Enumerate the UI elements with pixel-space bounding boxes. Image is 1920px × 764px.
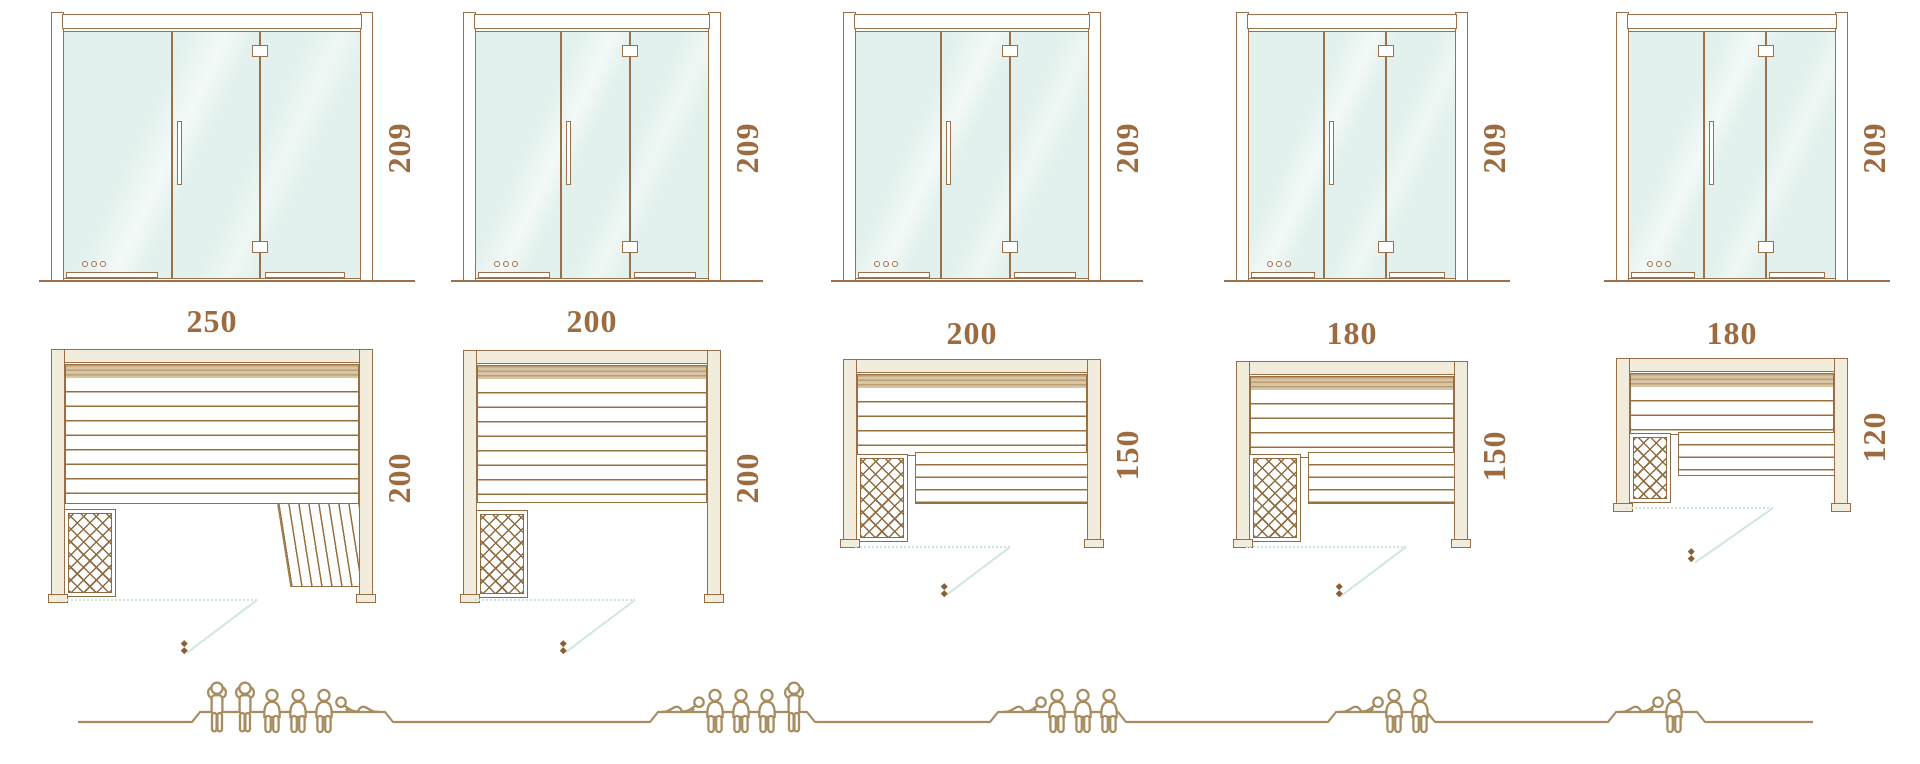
wall-foot bbox=[704, 594, 724, 603]
door-sill bbox=[1014, 272, 1077, 278]
front-glass-line bbox=[855, 546, 1010, 548]
door-sill bbox=[1389, 272, 1445, 278]
door-swing-line bbox=[1340, 546, 1407, 597]
door-height-dimension: 209 bbox=[1105, 126, 1149, 170]
plan-width-dimension: 180 bbox=[1616, 317, 1848, 349]
front-glass-line bbox=[475, 599, 635, 601]
door-swing-line bbox=[186, 599, 257, 654]
door-elevation: 209 bbox=[843, 12, 1101, 281]
door-frame-right-post bbox=[1088, 12, 1101, 281]
floor-plan bbox=[843, 359, 1101, 548]
wall-right bbox=[707, 350, 721, 596]
front-bench bbox=[915, 452, 1088, 504]
sauna-column-200x200: 209 200 200 bbox=[463, 0, 721, 764]
wall-foot bbox=[48, 594, 68, 603]
back-bench bbox=[65, 364, 359, 504]
plan-depth-dimension: 150 bbox=[1472, 434, 1516, 478]
plan-depth-dimension: 150 bbox=[1105, 433, 1149, 477]
vent-dots-icon bbox=[1647, 261, 1671, 267]
door-swing-line bbox=[1695, 507, 1774, 563]
door-sill bbox=[1251, 272, 1315, 278]
wall-right bbox=[1834, 358, 1848, 505]
door-swing-marker bbox=[560, 640, 566, 646]
door-hinge-icon bbox=[252, 241, 268, 253]
door-hinge-icon bbox=[252, 45, 268, 57]
door-frame-top-bar bbox=[62, 14, 362, 29]
door-frame-right-post bbox=[360, 12, 373, 281]
door-sill bbox=[1769, 272, 1825, 278]
wall-right bbox=[1087, 359, 1101, 541]
door-swing-line bbox=[564, 599, 635, 654]
door-frame-right-post bbox=[708, 12, 721, 281]
sauna-column-250x200: 209 250 200 bbox=[51, 0, 373, 764]
door-handle-icon bbox=[1329, 121, 1334, 185]
glass-mullion bbox=[940, 32, 942, 278]
front-glass-line bbox=[67, 599, 257, 601]
person-sitting bbox=[733, 690, 748, 732]
door-sill bbox=[634, 272, 697, 278]
door-hinge-icon bbox=[1002, 45, 1018, 57]
door-swing-marker bbox=[1688, 548, 1694, 554]
glass-front-panel bbox=[1248, 31, 1456, 279]
person-standing bbox=[785, 683, 803, 732]
door-handle-icon bbox=[946, 121, 951, 185]
door-sill bbox=[265, 272, 345, 278]
person-sitting bbox=[1101, 690, 1116, 732]
door-sill bbox=[478, 272, 550, 278]
vent-dots-icon bbox=[874, 261, 898, 267]
door-elevation: 209 bbox=[1616, 12, 1848, 281]
door-hinge-icon bbox=[1378, 45, 1394, 57]
door-frame-right-post bbox=[1835, 12, 1848, 281]
back-bench bbox=[1630, 373, 1834, 435]
heater bbox=[1629, 433, 1671, 503]
door-elevation: 209 bbox=[463, 12, 721, 281]
wall-left bbox=[51, 349, 65, 596]
back-bench bbox=[857, 374, 1087, 456]
wall-foot bbox=[1831, 503, 1851, 512]
door-baseline bbox=[39, 280, 415, 282]
floor-plan bbox=[1236, 361, 1468, 548]
plan-depth-dimension: 120 bbox=[1852, 415, 1896, 459]
wall-foot bbox=[1451, 539, 1471, 548]
door-frame-top-bar bbox=[474, 14, 710, 29]
door-frame-top-bar bbox=[1627, 14, 1837, 29]
door-swing-marker bbox=[1336, 583, 1342, 589]
glass-mullion bbox=[560, 32, 562, 278]
door-hinge-icon bbox=[622, 45, 638, 57]
glass-front-panel bbox=[63, 31, 361, 279]
floor-plan bbox=[51, 349, 373, 603]
door-sill bbox=[66, 272, 158, 278]
floor-plan bbox=[463, 350, 721, 603]
door-height-dimension: 209 bbox=[377, 126, 421, 170]
door-swing-line bbox=[946, 546, 1011, 596]
sauna-column-200x150: 209 200 150 bbox=[843, 0, 1101, 764]
door-handle-icon bbox=[1709, 121, 1714, 185]
wall-left bbox=[463, 350, 477, 596]
door-frame-top-bar bbox=[854, 14, 1090, 29]
wall-right bbox=[1454, 361, 1468, 541]
door-swing-marker bbox=[181, 640, 187, 646]
door-height-dimension: 209 bbox=[1852, 126, 1896, 170]
door-hinge-icon bbox=[1002, 241, 1018, 253]
wall-left bbox=[1236, 361, 1250, 541]
wall-back bbox=[51, 349, 373, 363]
door-frame-top-bar bbox=[1247, 14, 1457, 29]
plan-width-dimension: 250 bbox=[51, 305, 373, 337]
door-elevation: 209 bbox=[51, 12, 373, 281]
glass-mullion bbox=[1323, 32, 1325, 278]
door-handle-icon bbox=[566, 121, 571, 185]
heater bbox=[856, 454, 908, 542]
door-hinge-icon bbox=[1378, 241, 1394, 253]
wall-right bbox=[359, 349, 373, 596]
door-handle-icon bbox=[177, 121, 182, 185]
heater bbox=[476, 510, 528, 598]
door-height-dimension: 209 bbox=[1472, 126, 1516, 170]
door-hinge-icon bbox=[622, 241, 638, 253]
back-bench bbox=[477, 365, 707, 503]
sauna-column-180x120: 209 180 120 bbox=[1616, 0, 1848, 764]
wall-back bbox=[843, 359, 1101, 373]
glass-front-panel bbox=[1628, 31, 1836, 279]
wall-left bbox=[1616, 358, 1630, 505]
heater bbox=[1249, 454, 1301, 542]
sauna-size-diagram: 209 250 200 bbox=[0, 0, 1920, 764]
front-glass-line bbox=[1626, 507, 1773, 509]
vent-dots-icon bbox=[494, 261, 518, 267]
back-bench bbox=[1250, 376, 1454, 458]
wall-foot bbox=[356, 594, 376, 603]
front-bench bbox=[1678, 432, 1835, 476]
glass-mullion bbox=[1703, 32, 1705, 278]
vent-dots-icon bbox=[82, 261, 106, 267]
wall-left bbox=[843, 359, 857, 541]
heater bbox=[64, 509, 116, 597]
plan-width-dimension: 200 bbox=[463, 305, 721, 337]
person-sitting bbox=[759, 690, 774, 732]
door-frame-right-post bbox=[1455, 12, 1468, 281]
door-sill bbox=[1631, 272, 1695, 278]
door-hinge-icon bbox=[1758, 45, 1774, 57]
sauna-column-180x150: 209 180 150 bbox=[1236, 0, 1468, 764]
wall-back bbox=[463, 350, 721, 364]
wall-back bbox=[1616, 358, 1848, 372]
door-swing-marker bbox=[941, 583, 947, 589]
front-bench bbox=[1308, 452, 1455, 504]
front-glass-line bbox=[1246, 546, 1406, 548]
glass-front-panel bbox=[855, 31, 1089, 279]
glass-front-panel bbox=[475, 31, 709, 279]
plan-depth-dimension: 200 bbox=[725, 456, 769, 500]
plan-width-dimension: 200 bbox=[843, 317, 1101, 349]
wall-back bbox=[1236, 361, 1468, 375]
wall-foot bbox=[1084, 539, 1104, 548]
door-elevation: 209 bbox=[1236, 12, 1468, 281]
plan-width-dimension: 180 bbox=[1236, 317, 1468, 349]
floor-plan bbox=[1616, 358, 1848, 512]
glass-mullion bbox=[171, 32, 173, 278]
door-hinge-icon bbox=[1758, 241, 1774, 253]
door-sill bbox=[858, 272, 930, 278]
vent-dots-icon bbox=[1267, 261, 1291, 267]
door-height-dimension: 209 bbox=[725, 126, 769, 170]
plan-depth-dimension: 200 bbox=[377, 456, 421, 500]
